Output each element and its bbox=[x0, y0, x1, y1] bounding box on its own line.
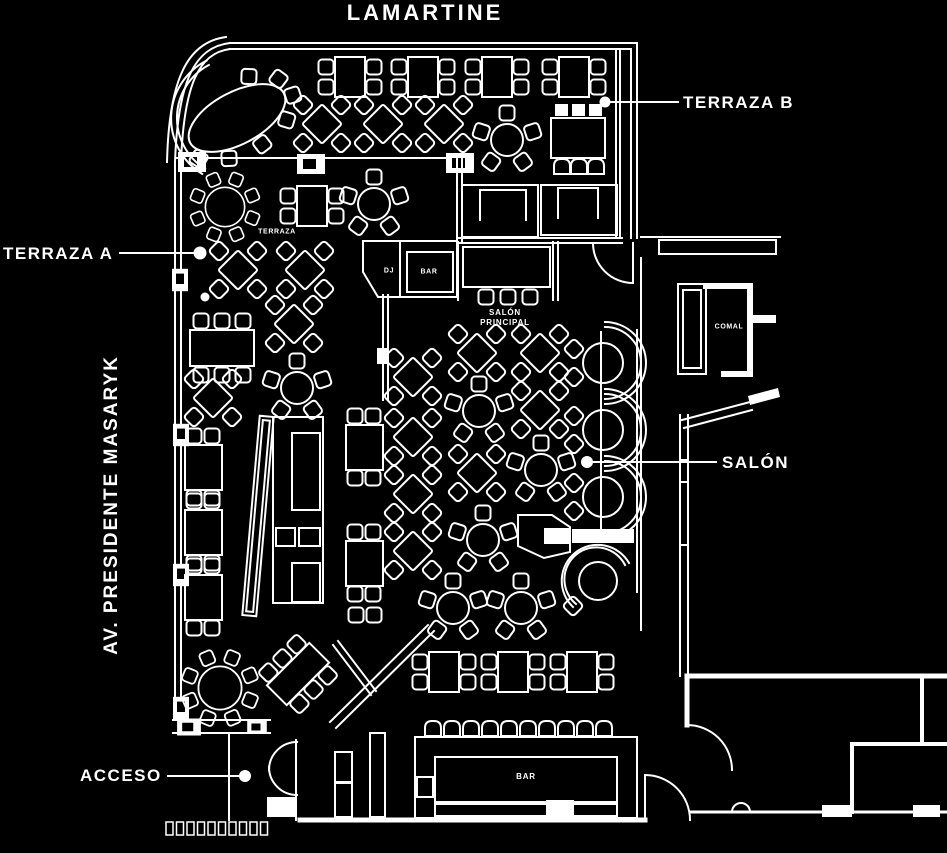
area-label-dj: DJ bbox=[384, 268, 394, 275]
salon-principal-line2: PRINCIPAL bbox=[480, 318, 530, 328]
area-label-bar-upper: BAR bbox=[421, 269, 438, 276]
street-label-top: LAMARTINE bbox=[347, 0, 504, 26]
area-label-terraza: TERRAZA bbox=[258, 229, 296, 236]
area-label-bar-lower: BAR bbox=[516, 772, 536, 782]
terraza-b-furniture bbox=[148, 28, 617, 237]
floor-plan-drawing bbox=[0, 0, 947, 853]
area-label-salon-principal: SALÓN PRINCIPAL bbox=[480, 308, 530, 328]
callout-terraza-a: TERRAZA A bbox=[3, 244, 113, 264]
salon-principal-line1: SALÓN bbox=[480, 308, 530, 318]
callout-terraza-b: TERRAZA B bbox=[683, 93, 794, 113]
area-label-comal: COMAL bbox=[715, 324, 744, 331]
lounge-block bbox=[242, 409, 383, 623]
callout-leaders bbox=[120, 97, 716, 783]
callout-salon: SALÓN bbox=[722, 453, 789, 473]
floor-plan: LAMARTINE AV. PRESIDENTE MASARYK TERRAZA… bbox=[0, 0, 947, 853]
terraza-a-furniture bbox=[181, 170, 409, 727]
street-label-left: AV. PRESIDENTE MASARYK bbox=[101, 315, 123, 695]
callout-acceso: ACCESO bbox=[80, 766, 162, 786]
bar-area bbox=[335, 721, 637, 818]
